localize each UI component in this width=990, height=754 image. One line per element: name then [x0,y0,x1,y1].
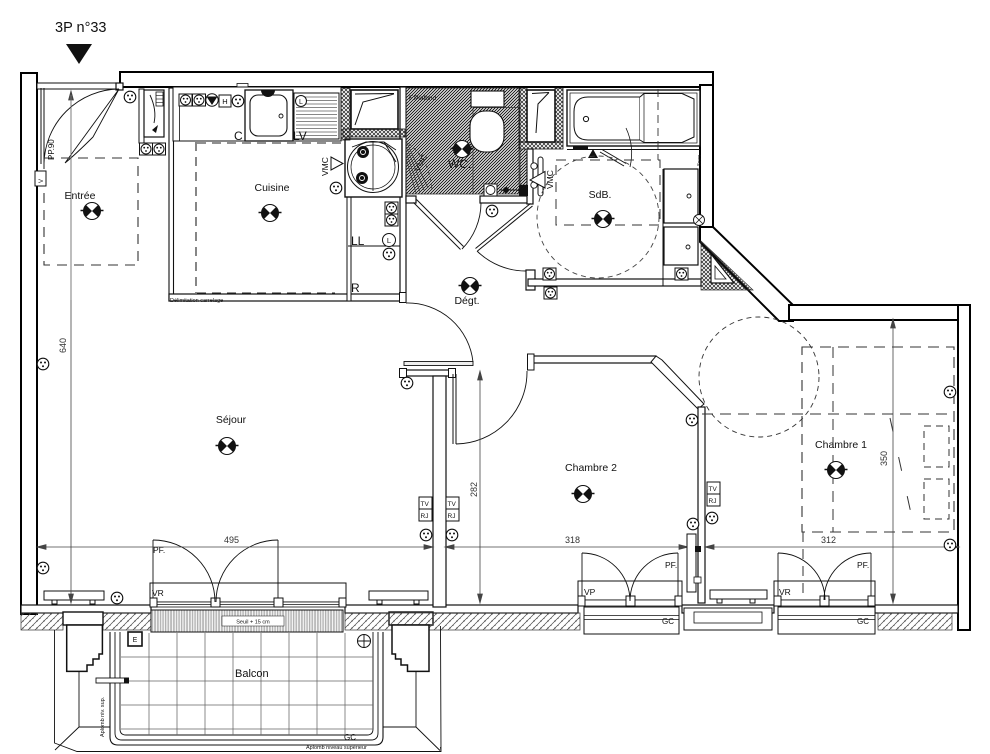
svg-text:318: 318 [565,535,580,545]
svg-text:Chambre 2: Chambre 2 [565,462,617,474]
svg-text:Aplomb niveau supérieur: Aplomb niveau supérieur [306,745,367,751]
svg-text:H: H [222,97,227,106]
svg-text:E: E [133,637,138,644]
svg-text:RJ: RJ [709,498,717,505]
svg-text:R: R [351,281,360,295]
svg-text:GC: GC [344,733,356,742]
svg-text:3P n°33: 3P n°33 [55,20,107,36]
svg-text:640: 640 [58,338,68,353]
svg-text:L: L [299,99,303,106]
svg-text:TV: TV [709,486,718,493]
svg-text:312: 312 [821,535,836,545]
svg-text:SdB.: SdB. [589,189,612,201]
svg-text:282: 282 [469,482,479,497]
svg-text:LV: LV [293,129,307,143]
svg-text:Balcon: Balcon [235,668,269,680]
svg-text:TV: TV [448,501,457,508]
svg-text:PF.: PF. [857,560,869,570]
svg-text:PF.: PF. [665,560,677,570]
svg-text:Délimitation carrelage: Délimitation carrelage [170,298,223,304]
svg-text:Cuisine: Cuisine [254,182,289,194]
svg-text:PF.: PF. [153,545,165,555]
svg-text:8mm: 8mm [697,155,703,166]
svg-text:495: 495 [224,535,239,545]
svg-text:VR: VR [152,588,164,598]
svg-text:350: 350 [879,451,889,466]
svg-text:F.Plafond: F.Plafond [409,95,436,102]
svg-text:RJ: RJ [448,513,456,520]
svg-text:PP.90: PP.90 [47,139,56,160]
svg-text:L: L [387,236,391,245]
svg-text:TV: TV [421,501,430,508]
svg-text:VMC: VMC [545,170,555,189]
svg-text:Dégt.: Dégt. [454,295,479,307]
svg-text:Entrée: Entrée [65,190,96,202]
svg-text:V: V [39,179,45,183]
svg-text:Chambre 1: Chambre 1 [815,439,867,451]
svg-text:Séjour: Séjour [216,414,247,426]
svg-text:VR: VR [779,587,791,597]
svg-text:Seuil + 15 cm: Seuil + 15 cm [236,620,270,626]
svg-text:LL: LL [351,234,365,248]
svg-text:GC: GC [662,617,674,626]
svg-text:RJ: RJ [421,513,429,520]
svg-text:VMC: VMC [320,157,330,176]
svg-text:GC: GC [857,617,869,626]
svg-text:WC.: WC. [448,157,471,171]
svg-text:Aplomb niv. sup.: Aplomb niv. sup. [100,696,106,737]
svg-text:VP: VP [584,587,596,597]
svg-text:C: C [234,129,243,143]
